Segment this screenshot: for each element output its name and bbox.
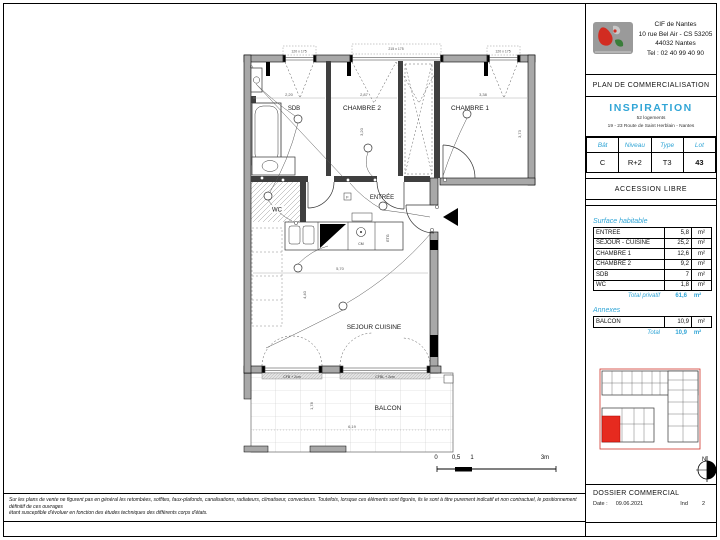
key-plan <box>586 366 716 453</box>
unit-highlight <box>602 416 620 442</box>
surface-label: CHAMBRE 2 <box>594 259 665 270</box>
total-annexes-value: 10,9 <box>663 330 689 336</box>
surface-value: 12,6 <box>665 249 692 260</box>
svg-text:2,87: 2,87 <box>360 92 369 97</box>
annex-label: BALCON <box>594 317 665 328</box>
total-privatif-label: Total privatif <box>593 293 663 299</box>
surface-unit: m² <box>692 270 712 281</box>
cif-logo-icon <box>591 20 635 58</box>
room-label-wc: WC <box>272 208 283 214</box>
table-row: CHAMBRE 2 9,2 m² <box>594 259 712 270</box>
room-label-balcon: BALCON <box>375 405 402 412</box>
window-dim-label: 120 x 175 <box>495 50 510 54</box>
dossier-ind-label: Ind <box>680 501 688 507</box>
total-annexes-label: Total <box>593 330 663 336</box>
surface-label: SDB <box>594 270 665 281</box>
wc-floor-hatch <box>251 182 300 222</box>
annexes-title: Annexes <box>593 307 716 314</box>
corner-label: D. <box>250 64 254 69</box>
surfaces-block: Surface habitable ENTREE 5,8 m² SEJOUR -… <box>586 206 716 366</box>
window-dim-label: 215 x 175 <box>388 47 403 51</box>
total-annexes-row: Total 10,9 m² <box>593 330 706 336</box>
surface-label: WC <box>594 280 665 291</box>
annex-value: 10,9 <box>665 317 692 328</box>
svg-text:0,5: 0,5 <box>452 455 461 461</box>
company-name: CIF de Nantes <box>635 20 716 30</box>
total-annexes-unit: m² <box>689 330 706 336</box>
dossier-date-value: 09.06.2021 <box>616 501 644 507</box>
room-label-chambre1: CHAMBRE 1 <box>451 105 489 112</box>
svg-text:2,20: 2,20 <box>285 92 294 97</box>
unit-value-bat: C <box>587 153 619 173</box>
wall-window-mark <box>430 335 438 357</box>
svg-text:3,38: 3,38 <box>479 92 488 97</box>
title-block: CIF de Nantes 10 rue Bel Air - CS 53205 … <box>585 4 716 536</box>
unit-value-lot: 43 <box>683 153 715 173</box>
company-address: CIF de Nantes 10 rue Bel Air - CS 53205 … <box>635 20 716 58</box>
bathtub <box>252 103 281 165</box>
svg-text:1,78: 1,78 <box>309 401 314 410</box>
svg-text:1: 1 <box>470 455 474 461</box>
total-privatif-row: Total privatif 61,6 m² <box>593 293 706 299</box>
dossier-block: DOSSIER COMMERCIAL Date : 09.06.2021 Ind… <box>586 484 716 533</box>
room-label-chambre2: CHAMBRE 2 <box>343 105 381 112</box>
unit-value-type: T3 <box>651 153 683 173</box>
company-block: CIF de Nantes 10 rue Bel Air - CS 53205 … <box>586 4 716 75</box>
sill-label: CFBL + 2cm <box>375 375 395 379</box>
unit-header-niveau: Niveau <box>619 138 651 153</box>
surface-label: ENTREE <box>594 228 665 239</box>
svg-text:0: 0 <box>434 455 438 461</box>
surface-value: 1,8 <box>665 280 692 291</box>
gaine <box>405 64 432 174</box>
unit-header-bat: Bât <box>587 138 619 153</box>
total-privatif-unit: m² <box>689 293 706 299</box>
room-label-entree: ENTRÉE <box>370 194 394 201</box>
unit-table: Bât Niveau Type Lot C R+2 T3 43 <box>586 137 716 173</box>
compass-block: N <box>586 453 716 484</box>
disclaimer-line2: étant susceptible d'évoluer en fonction … <box>9 510 580 517</box>
room-label-sdb: SDB <box>288 106 300 112</box>
dossier-date-label: Date : <box>593 501 608 507</box>
cabinets <box>252 228 282 326</box>
surface-label: CHAMBRE 1 <box>594 249 665 260</box>
surface-unit: m² <box>692 249 712 260</box>
balcony <box>244 373 453 452</box>
total-privatif-value: 61,6 <box>663 293 689 299</box>
program-line2: 19 - 23 Route de Saint Herblain - Nantes <box>586 124 716 130</box>
room-label-sejour: SEJOUR CUISINE <box>347 324 402 331</box>
wall-window-mark <box>430 240 438 250</box>
entrance-arrow-icon <box>443 208 458 226</box>
unit-header-lot: Lot <box>683 138 715 153</box>
surface-value: 7 <box>665 270 692 281</box>
access-type: ACCESSION LIBRE <box>586 178 716 200</box>
surfaces-table: ENTREE 5,8 m² SEJOUR - CUISINE 25,2 m² C… <box>593 227 712 291</box>
program-name: INSPIRATION <box>586 102 716 114</box>
disclaimer-line1: Sur les plans de vente ne figurent pas e… <box>9 497 580 510</box>
sill-label: CFB + 2cm <box>283 375 301 379</box>
surface-value: 25,2 <box>665 238 692 249</box>
svg-text:4,40: 4,40 <box>302 290 307 299</box>
surface-value: 5,8 <box>665 228 692 239</box>
svg-text:6,19: 6,19 <box>348 424 357 429</box>
plan-sheet: 120 x 175 215 x 175 120 x 175 CFB + 2cm … <box>0 0 720 540</box>
surfaces-title: Surface habitable <box>593 218 716 225</box>
tall-unit-label: ETG <box>386 234 390 241</box>
bottom-windows <box>262 366 430 373</box>
svg-text:3m: 3m <box>541 455 549 461</box>
disclaimer-block: Sur les plans de vente ne figurent pas e… <box>4 493 585 522</box>
table-row: SEJOUR - CUISINE 25,2 m² <box>594 238 712 249</box>
program-line1: 52 logements <box>586 116 716 122</box>
unit-value-niveau: R+2 <box>619 153 651 173</box>
window-dim-label: 120 x 175 <box>291 50 306 54</box>
north-arrow-icon: N <box>586 453 716 484</box>
dossier-title: DOSSIER COMMERCIAL <box>593 490 709 497</box>
company-phone: Tel : 02 40 99 40 90 <box>635 49 716 59</box>
company-address1: 10 rue Bel Air - CS 53205 <box>635 30 716 40</box>
surface-unit: m² <box>692 228 712 239</box>
washbasin <box>252 157 295 175</box>
svg-text:5,70: 5,70 <box>336 266 345 271</box>
table-row: WC 1,8 m² <box>594 280 712 291</box>
surface-label: SEJOUR - CUISINE <box>594 238 665 249</box>
program-block: INSPIRATION 52 logements 19 - 23 Route d… <box>586 97 716 137</box>
surface-value: 9,2 <box>665 259 692 270</box>
dossier-ind-value: 2 <box>702 501 705 507</box>
hob-label: CM <box>358 242 364 246</box>
company-address2: 44032 Nantes <box>635 39 716 49</box>
table-row: BALCON 10,9 m² <box>594 317 712 328</box>
surface-unit: m² <box>692 238 712 249</box>
annex-unit: m² <box>692 317 712 328</box>
annexes-table: BALCON 10,9 m² <box>593 316 712 328</box>
document-type: PLAN DE COMMERCIALISATION <box>586 75 716 97</box>
table-row: SDB 7 m² <box>594 270 712 281</box>
table-row: ENTREE 5,8 m² <box>594 228 712 239</box>
unit-header-type: Type <box>651 138 683 153</box>
surface-unit: m² <box>692 259 712 270</box>
scale-bar: 0 0,5 1 3m <box>434 455 556 472</box>
table-row: CHAMBRE 1 12,6 m² <box>594 249 712 260</box>
svg-text:3,20: 3,20 <box>359 127 364 136</box>
svg-text:3,73: 3,73 <box>517 129 522 138</box>
surface-unit: m² <box>692 280 712 291</box>
